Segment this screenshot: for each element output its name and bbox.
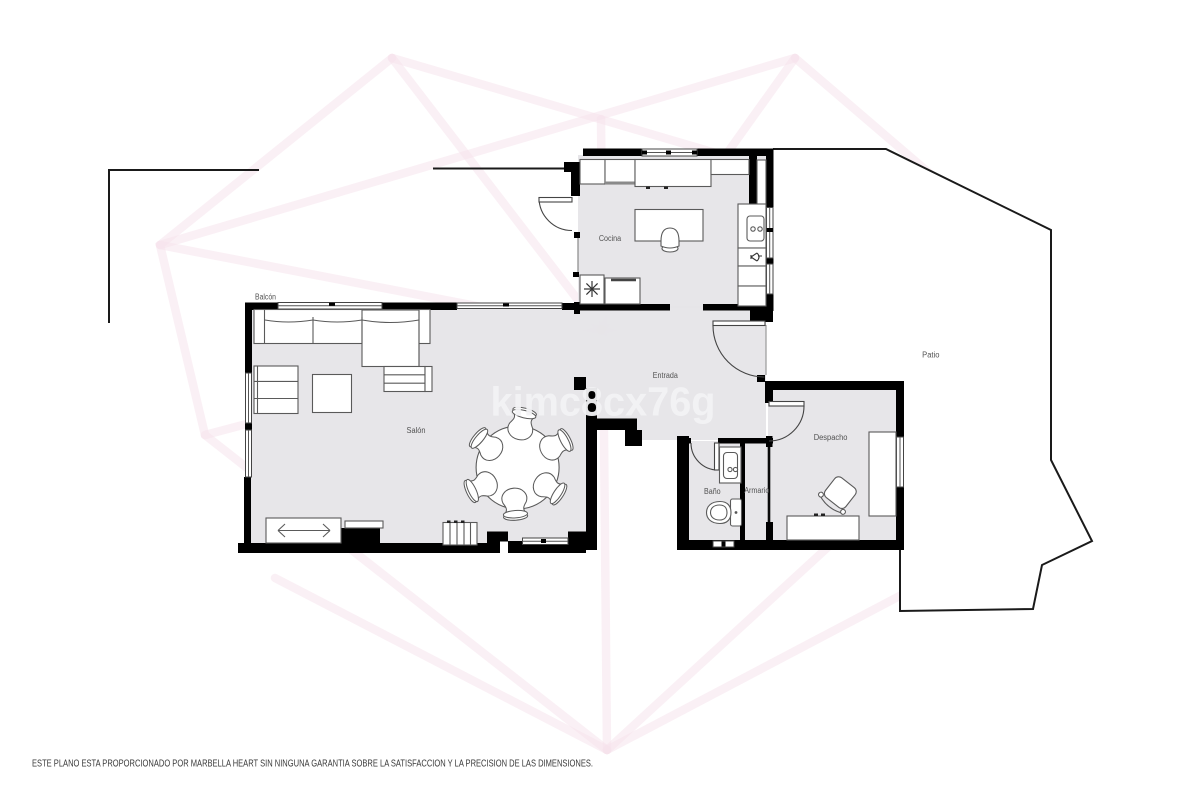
svg-text:Cocina: Cocina [599,234,622,243]
svg-text:ESTE PLANO ESTA PROPORCIONADO: ESTE PLANO ESTA PROPORCIONADO POR MARBEL… [32,759,593,770]
svg-text:Balcón: Balcón [255,293,276,302]
svg-text:Salón: Salón [407,426,426,435]
svg-text:Baño: Baño [704,487,721,496]
svg-text:kimc8cx76g: kimc8cx76g [491,379,716,425]
svg-text:Patio: Patio [922,350,940,359]
svg-text:Despacho: Despacho [814,433,848,442]
svg-text:Armario: Armario [744,486,769,495]
